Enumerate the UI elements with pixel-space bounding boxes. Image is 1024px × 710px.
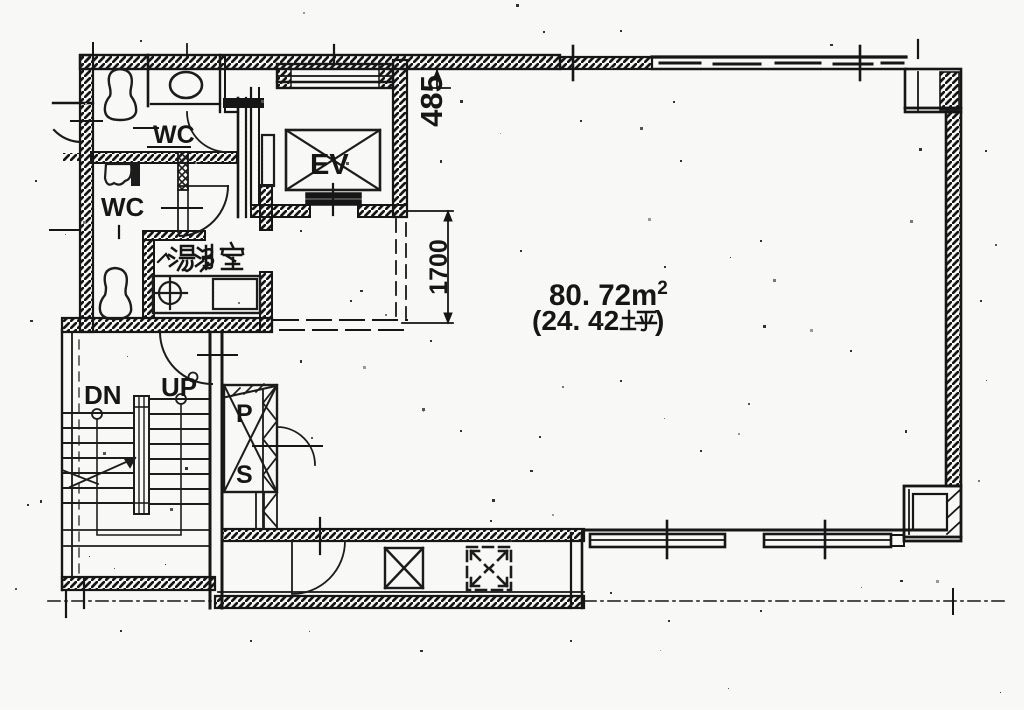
svg-text:1700: 1700 — [425, 239, 453, 295]
svg-text:(24. 42: (24. 42 — [532, 305, 619, 336]
svg-text:EV: EV — [310, 149, 349, 181]
svg-text:WC: WC — [153, 121, 195, 149]
svg-text:UP: UP — [161, 372, 197, 402]
svg-text:P: P — [236, 400, 253, 428]
svg-text:S: S — [236, 461, 253, 489]
svg-text:DN: DN — [84, 380, 122, 410]
svg-text:WC: WC — [101, 192, 145, 222]
svg-text:): ) — [655, 305, 664, 336]
svg-text:485: 485 — [414, 75, 449, 127]
